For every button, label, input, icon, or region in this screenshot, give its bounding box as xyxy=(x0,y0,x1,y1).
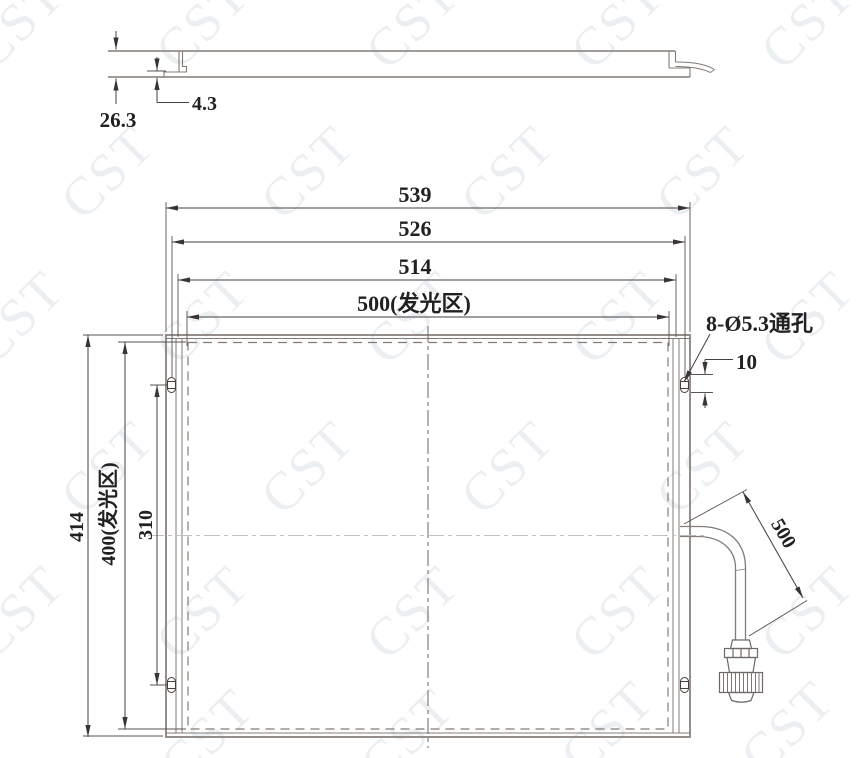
cable-joint-tick xyxy=(736,569,746,571)
bracket-foot xyxy=(669,68,690,77)
technical-drawing: CST CST CST CST CST CST CST CST CST CST … xyxy=(0,0,866,758)
watermark-text: CST xyxy=(549,669,666,758)
drawing-canvas: CST CST CST CST CST CST CST CST CST CST … xyxy=(0,0,866,758)
dim-label-overall-width: 539 xyxy=(399,182,432,207)
knurl-stripes xyxy=(724,673,760,693)
cable-line xyxy=(711,70,715,73)
hole-note-label: 8-Ø5.3通孔 xyxy=(706,311,813,336)
watermark-text: CST xyxy=(449,114,566,231)
connector-body xyxy=(727,658,756,673)
mounting-hole xyxy=(168,678,176,693)
watermark-text: CST xyxy=(0,554,76,671)
connector-cap xyxy=(729,693,755,703)
dim-label-thickness: 26.3 xyxy=(100,108,137,132)
cable-line xyxy=(680,537,736,641)
connector xyxy=(720,640,763,702)
watermark-text: CST xyxy=(0,259,76,376)
dim-label-emitting-height: 400(发光区) xyxy=(96,462,120,565)
dim-label-hole-spacing-height: 310 xyxy=(135,510,157,540)
dimension-line xyxy=(743,492,803,598)
dim-label-emitting-width: 500(发光区) xyxy=(357,291,471,316)
watermark-text: CST xyxy=(644,114,761,231)
watermark-text: CST xyxy=(559,0,676,81)
watermark-text: CST xyxy=(354,554,471,671)
dim-label-overall-height: 414 xyxy=(66,512,88,542)
watermark-text: CST xyxy=(729,669,846,758)
watermark-text: CST xyxy=(249,409,366,526)
connector-neck xyxy=(731,640,752,649)
watermark-text: CST xyxy=(0,0,76,81)
dim-label-hole-offset: 10 xyxy=(736,350,757,374)
mounting-hole xyxy=(681,678,689,693)
dim-label-hole-spacing-width: 526 xyxy=(399,216,432,241)
cable-line xyxy=(676,67,711,73)
watermark-text: CST xyxy=(644,409,761,526)
watermark-text: CST xyxy=(144,554,261,671)
dim-label-cable-length: 500 xyxy=(766,515,800,552)
watermark-text: CST xyxy=(749,0,866,81)
mounting-hole xyxy=(168,378,176,393)
watermark-text: CST xyxy=(449,409,566,526)
watermark-text: CST xyxy=(354,0,471,81)
dim-label-step: 4.3 xyxy=(192,93,217,115)
watermark-text: CST xyxy=(749,554,866,671)
watermark-text: CST xyxy=(144,0,261,81)
connector-knurl xyxy=(720,673,763,693)
watermark-text: CST xyxy=(249,114,366,231)
watermark-text: CST xyxy=(559,554,676,671)
dim-label-frame-width: 514 xyxy=(399,254,432,279)
mounting-hole xyxy=(681,378,689,393)
watermark-text: CST xyxy=(349,677,466,758)
